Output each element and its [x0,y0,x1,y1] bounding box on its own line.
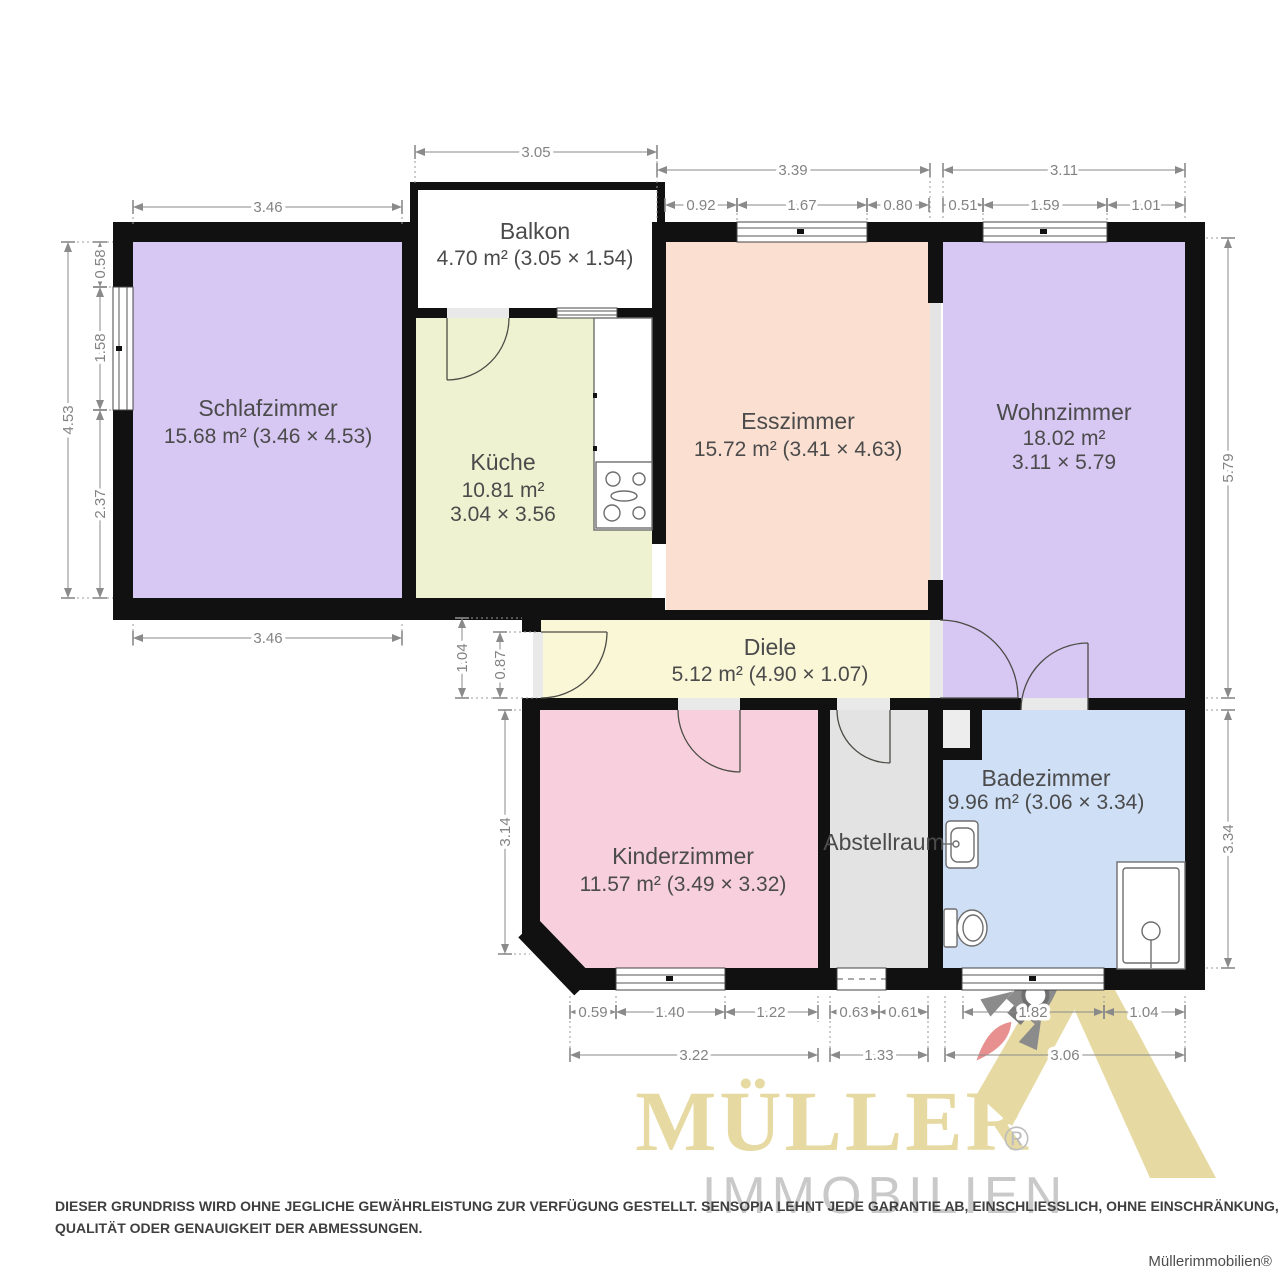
svg-text:3.34: 3.34 [1220,824,1237,853]
svg-text:1.82: 1.82 [1018,1004,1047,1021]
svg-text:15.68 m² (3.46 × 4.53): 15.68 m² (3.46 × 4.53) [164,425,372,448]
dim-left-seg2: 1.58 [92,287,109,410]
svg-text:0.87: 0.87 [492,650,509,679]
room-kinderzimmer-floor [540,710,818,968]
dim-wohnzimmer-seg1: 0.51 [943,197,983,214]
svg-text:1.04: 1.04 [454,643,471,672]
svg-text:3.11: 3.11 [1050,162,1078,179]
svg-text:Küche: Küche [470,449,535,475]
svg-text:9.96 m² (3.06 × 3.34): 9.96 m² (3.06 × 3.34) [948,791,1145,814]
dim-kinder-total: 3.22 [570,1047,818,1064]
svg-text:18.02 m²: 18.02 m² [1023,427,1106,450]
svg-text:4.70 m² (3.05 × 1.54): 4.70 m² (3.05 × 1.54) [437,247,634,270]
svg-text:5.12 m² (4.90 × 1.07): 5.12 m² (4.90 × 1.07) [672,663,869,686]
svg-text:3.46: 3.46 [253,630,282,647]
dim-wohnzimmer-right: 5.79 [1220,238,1237,698]
dim-wohnzimmer-seg2: 1.59 [983,197,1107,214]
room-abstellraum-label: Abstellraum [823,829,944,855]
svg-text:1.40: 1.40 [655,1004,684,1021]
window-esszimmer [737,222,867,242]
svg-text:Schlafzimmer: Schlafzimmer [198,395,338,421]
svg-text:3.39: 3.39 [778,162,807,179]
svg-text:10.81 m²: 10.81 m² [462,479,545,502]
svg-text:3.11 × 5.79: 3.11 × 5.79 [1012,451,1116,474]
dim-kinder-seg2: 1.40 [616,1004,725,1021]
window-abstellraum [837,968,886,990]
dim-esszimmer-seg3: 0.80 [867,197,929,214]
svg-text:0.59: 0.59 [578,1004,607,1021]
svg-text:3.14: 3.14 [497,817,514,846]
svg-text:3.05: 3.05 [521,144,550,161]
svg-text:5.79: 5.79 [1220,453,1237,482]
svg-text:15.72 m² (3.41 × 4.63): 15.72 m² (3.41 × 4.63) [694,438,902,461]
dim-entrance-door: 0.87 [492,632,509,698]
svg-text:1.58: 1.58 [92,333,109,362]
dim-balkon-width: 3.05 [415,144,657,161]
dim-wohnzimmer-total: 3.11 [943,162,1185,179]
svg-text:0.92: 0.92 [686,197,715,214]
floorplan-canvas: MÜLLER ® IMMOBILIEN [0,0,1280,1280]
svg-text:Kinderzimmer: Kinderzimmer [612,843,754,869]
svg-text:Abstellraum: Abstellraum [823,829,944,855]
watermark: Müllerimmobilien® [1148,1253,1272,1270]
svg-text:1.04: 1.04 [1129,1004,1158,1021]
svg-text:Badezimmer: Badezimmer [981,765,1110,791]
dim-left-total: 4.53 [60,242,77,598]
dim-esszimmer-seg2: 1.67 [737,197,867,214]
footer: DIESER GRUNDRISS WIRD OHNE JEGLICHE GEWÄ… [55,1198,1280,1270]
svg-text:4.53: 4.53 [60,405,77,434]
dim-kinder-seg3: 1.22 [725,1004,818,1021]
dim-kinder-seg1: 0.59 [570,1004,616,1021]
svg-text:2.37: 2.37 [92,489,109,518]
svg-text:1.22: 1.22 [756,1004,785,1021]
svg-text:0.51: 0.51 [948,197,977,214]
svg-text:0.63: 0.63 [839,1004,868,1021]
svg-text:3.04 × 3.56: 3.04 × 3.56 [450,503,556,526]
dim-left-seg3: 2.37 [92,410,109,598]
svg-text:3.06: 3.06 [1050,1047,1079,1064]
svg-text:Diele: Diele [744,634,796,660]
svg-text:3.46: 3.46 [253,199,282,216]
svg-text:11.57 m² (3.49 × 3.32): 11.57 m² (3.49 × 3.32) [580,873,787,896]
dim-abstell-total: 1.33 [830,1047,928,1064]
dim-badezimmer-right: 3.34 [1220,710,1237,968]
window-kinderzimmer [616,968,725,990]
svg-text:0.61: 0.61 [888,1004,917,1021]
dim-kinderzimmer-left: 3.14 [497,710,514,954]
window-badezimmer [962,968,1104,990]
dim-wohnzimmer-seg3: 1.01 [1107,197,1185,214]
dim-esszimmer-seg1: 0.92 [665,197,737,214]
window-schlafzimmer [113,287,133,410]
svg-text:1.59: 1.59 [1030,197,1059,214]
dim-schlafzimmer-bottom: 3.46 [133,630,402,647]
svg-text:1.67: 1.67 [787,197,816,214]
shower-icon [1117,862,1185,969]
svg-text:3.22: 3.22 [679,1047,708,1064]
svg-text:0.58: 0.58 [92,249,109,278]
window-wohnzimmer [983,222,1107,242]
logo-title: MÜLLER [635,1073,1030,1169]
svg-text:Esszimmer: Esszimmer [741,408,855,434]
logo-subtitle: IMMOBILIEN [702,1167,1068,1225]
svg-text:Wohnzimmer: Wohnzimmer [996,399,1131,425]
window-kueche [557,308,617,318]
toilet-icon [944,909,987,947]
stove-icon [596,462,652,528]
disclaimer-line1: DIESER GRUNDRISS WIRD OHNE JEGLICHE GEWÄ… [55,1198,1280,1214]
floorplan-page: MÜLLER ® IMMOBILIEN [0,0,1280,1280]
dim-diele-left: 1.04 [454,618,471,698]
dim-abstell-seg2: 0.61 [879,1004,928,1021]
svg-text:1.01: 1.01 [1131,197,1160,214]
sink-icon [943,821,978,868]
dim-abstell-seg1: 0.63 [830,1004,879,1021]
svg-text:0.80: 0.80 [883,197,912,214]
dim-left-seg1: 0.58 [92,242,109,287]
disclaimer-line2: QUALITÄT ODER GENAUIGKEIT DER ABMESSUNGE… [55,1220,422,1236]
dim-esszimmer-total: 3.39 [657,162,930,179]
registered-mark: ® [1004,1120,1029,1158]
dim-schlafzimmer-top: 3.46 [133,199,402,216]
svg-text:Balkon: Balkon [500,218,570,244]
svg-text:1.33: 1.33 [864,1047,893,1064]
